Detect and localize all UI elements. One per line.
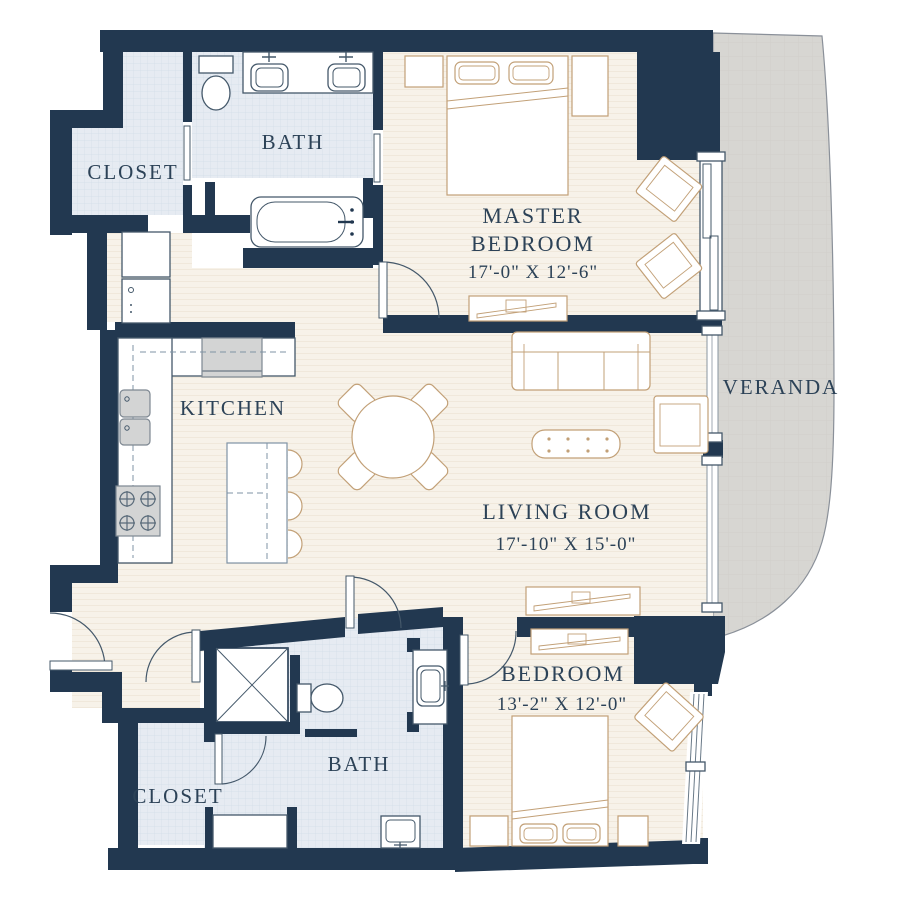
tv-console-symbol: [469, 296, 567, 321]
toilet-symbol: [297, 684, 343, 712]
label-master-bedroom-dims: 17'-0" X 12'-6": [468, 262, 598, 283]
dining-table-symbol: [336, 382, 450, 492]
label-closet-top: CLOSET: [87, 160, 178, 184]
dresser-tall-symbol: [572, 56, 608, 116]
kitchen-sink-symbol: [120, 390, 150, 445]
label-veranda: VERANDA: [723, 375, 840, 399]
master-bed-symbol: [447, 56, 568, 195]
label-closet-bottom: CLOSET: [132, 784, 223, 808]
sofa-symbol: [512, 332, 650, 390]
vanity-symbol: [413, 650, 449, 724]
doorway-floor-2: [463, 617, 517, 637]
toilet-symbol: [199, 56, 233, 110]
vanity-symbol: [381, 816, 420, 849]
floorplan-canvas: CLOSET BATH MASTER BEDROOM 17'-0" X 12'-…: [0, 0, 900, 900]
nightstand-symbol: [405, 56, 443, 87]
armchair-symbol: [654, 396, 708, 453]
pocket-door-closet: [184, 126, 190, 180]
label-bath-top: BATH: [262, 130, 325, 154]
double-vanity-symbol: [243, 52, 373, 93]
fridge-symbol: [122, 232, 170, 323]
veranda-floor: [713, 33, 834, 636]
label-bedroom: BEDROOM: [501, 661, 625, 686]
nightstand-symbol: [618, 816, 648, 846]
veranda-area: [713, 33, 834, 636]
label-bath-bottom: BATH: [328, 752, 391, 776]
label-kitchen: KITCHEN: [180, 396, 286, 420]
floorplan-page: CLOSET BATH MASTER BEDROOM 17'-0" X 12'-…: [0, 0, 900, 900]
sliding-door: [697, 152, 725, 320]
dresser-symbol: [531, 629, 628, 654]
closet-top-tile: [72, 52, 183, 215]
stove-symbol: [116, 486, 160, 536]
nightstand-symbol: [470, 816, 508, 846]
closet-builtin: [213, 815, 287, 848]
ottoman-symbol: [532, 430, 620, 458]
label-master-bedroom-2: BEDROOM: [471, 231, 595, 256]
bed-symbol: [512, 716, 608, 846]
label-bedroom-dims: 13'-2" X 12'-0": [497, 694, 627, 715]
tv-console-symbol: [526, 587, 640, 615]
label-living-room-dims: 17'-10" X 15'-0": [496, 534, 637, 555]
pocket-door-masterbath: [374, 134, 380, 182]
bathtub-symbol: [251, 197, 363, 247]
shower-symbol: [216, 648, 288, 722]
label-master-bedroom-1: MASTER: [482, 203, 583, 228]
label-living-room: LIVING ROOM: [482, 499, 651, 524]
island-symbol: [227, 443, 302, 563]
